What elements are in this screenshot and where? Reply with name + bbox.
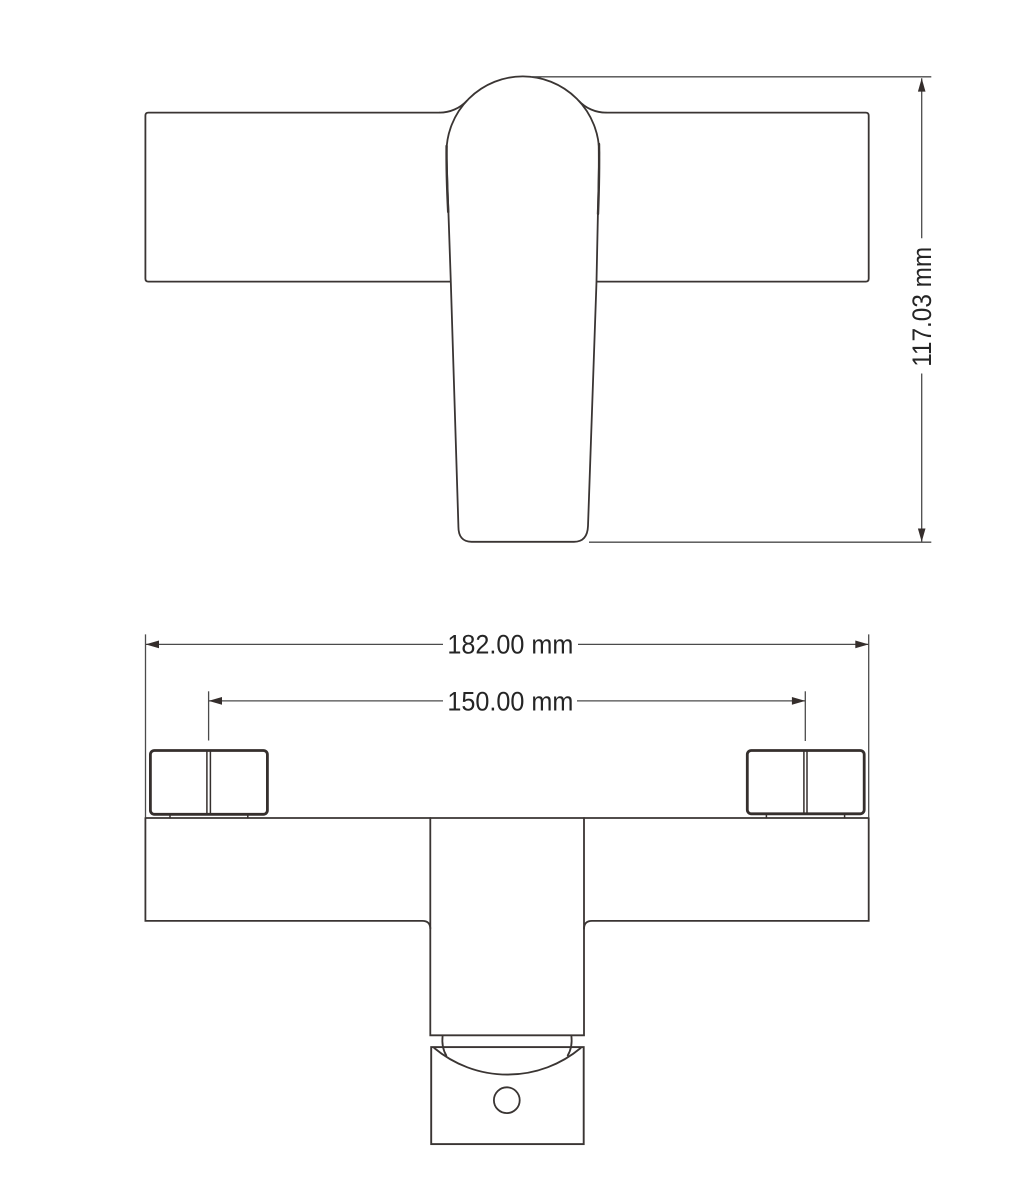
svg-text:150.00 mm: 150.00 mm (447, 686, 573, 716)
svg-text:117.03 mm: 117.03 mm (907, 247, 937, 367)
svg-text:182.00 mm: 182.00 mm (447, 629, 573, 659)
